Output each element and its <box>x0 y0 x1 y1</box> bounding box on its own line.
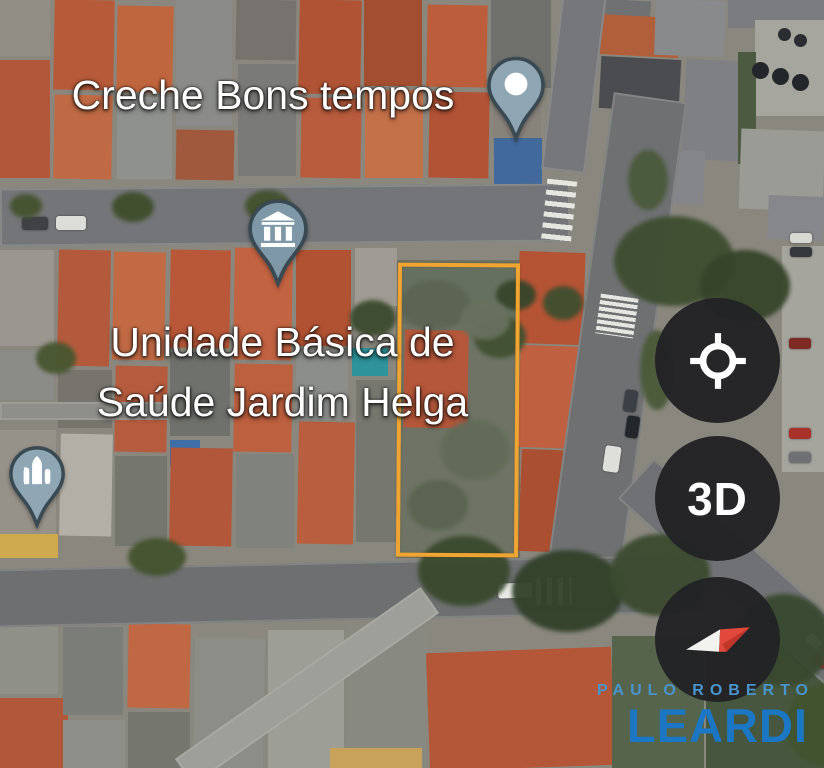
map-art-shape <box>681 59 744 162</box>
map-label-ubs-line1: Unidade Básica de <box>55 312 510 372</box>
map-art-shape <box>789 452 811 463</box>
map-art-shape <box>595 294 638 339</box>
map-art-shape <box>0 698 68 768</box>
map-art-shape <box>10 194 42 218</box>
civic-building-icon <box>247 196 309 290</box>
map-art-shape <box>0 250 54 346</box>
map-art-shape <box>0 624 58 694</box>
map-art-shape <box>772 68 789 85</box>
brand-watermark: PAULO ROBERTO LEARDI <box>597 683 808 749</box>
map-label-creche[interactable]: Creche Bons tempos <box>48 72 478 119</box>
church-pin[interactable] <box>8 443 66 531</box>
brand-watermark-line1: PAULO ROBERTO <box>597 683 814 699</box>
health-facility-pin[interactable] <box>247 196 309 290</box>
map-art-shape <box>63 720 125 768</box>
map-art-shape <box>297 422 355 545</box>
map-art-shape <box>778 28 791 41</box>
map-art-shape <box>56 216 86 230</box>
map-art-shape <box>127 623 190 708</box>
map-art-shape <box>63 627 123 715</box>
map-art-shape <box>543 286 583 320</box>
map-art-shape <box>512 550 624 632</box>
compass-needle-icon <box>684 625 752 655</box>
map-art-shape <box>235 0 296 61</box>
place-pin-icon <box>486 56 546 142</box>
map-art-shape <box>355 248 397 306</box>
map-art-shape <box>794 34 807 47</box>
map-label-ubs[interactable]: Unidade Básica de Saúde Jardim Helga <box>55 312 510 432</box>
map-art-shape <box>330 748 422 768</box>
map-art-shape <box>752 62 769 79</box>
map-art-shape <box>426 647 615 768</box>
map-art-shape <box>789 428 811 439</box>
map-art-shape <box>169 447 233 546</box>
map-art-shape <box>628 150 668 210</box>
map-art-shape <box>112 192 154 222</box>
crosshair-icon <box>685 328 751 394</box>
map-art-shape <box>790 247 812 257</box>
map-art-shape <box>541 0 607 174</box>
map-art-shape <box>654 0 726 57</box>
map-art-shape <box>0 0 50 56</box>
brand-watermark-line2: LEARDI <box>597 702 808 749</box>
map-art-shape <box>59 434 113 537</box>
3d-view-button[interactable]: 3D <box>655 436 780 561</box>
map-art-shape <box>236 454 294 548</box>
map-art-shape <box>0 534 58 558</box>
map-art-shape <box>22 217 48 230</box>
3d-button-label: 3D <box>687 472 748 526</box>
map-art-shape <box>0 60 50 178</box>
map-art-shape <box>494 138 542 184</box>
creche-place-pin[interactable] <box>486 56 546 142</box>
map-art-shape <box>176 129 235 180</box>
map-label-ubs-line2: Saúde Jardim Helga <box>55 372 510 432</box>
map-art-shape <box>115 456 167 546</box>
map-art-shape <box>128 538 186 576</box>
map-art-shape <box>789 338 811 349</box>
map-art-shape <box>792 74 809 91</box>
my-location-button[interactable] <box>655 298 780 423</box>
church-icon <box>8 443 66 531</box>
map-art-shape <box>790 233 812 243</box>
map-art-shape <box>541 179 578 246</box>
satellite-map[interactable]: Creche Bons tempos Unidade Básica de Saú… <box>0 0 824 768</box>
